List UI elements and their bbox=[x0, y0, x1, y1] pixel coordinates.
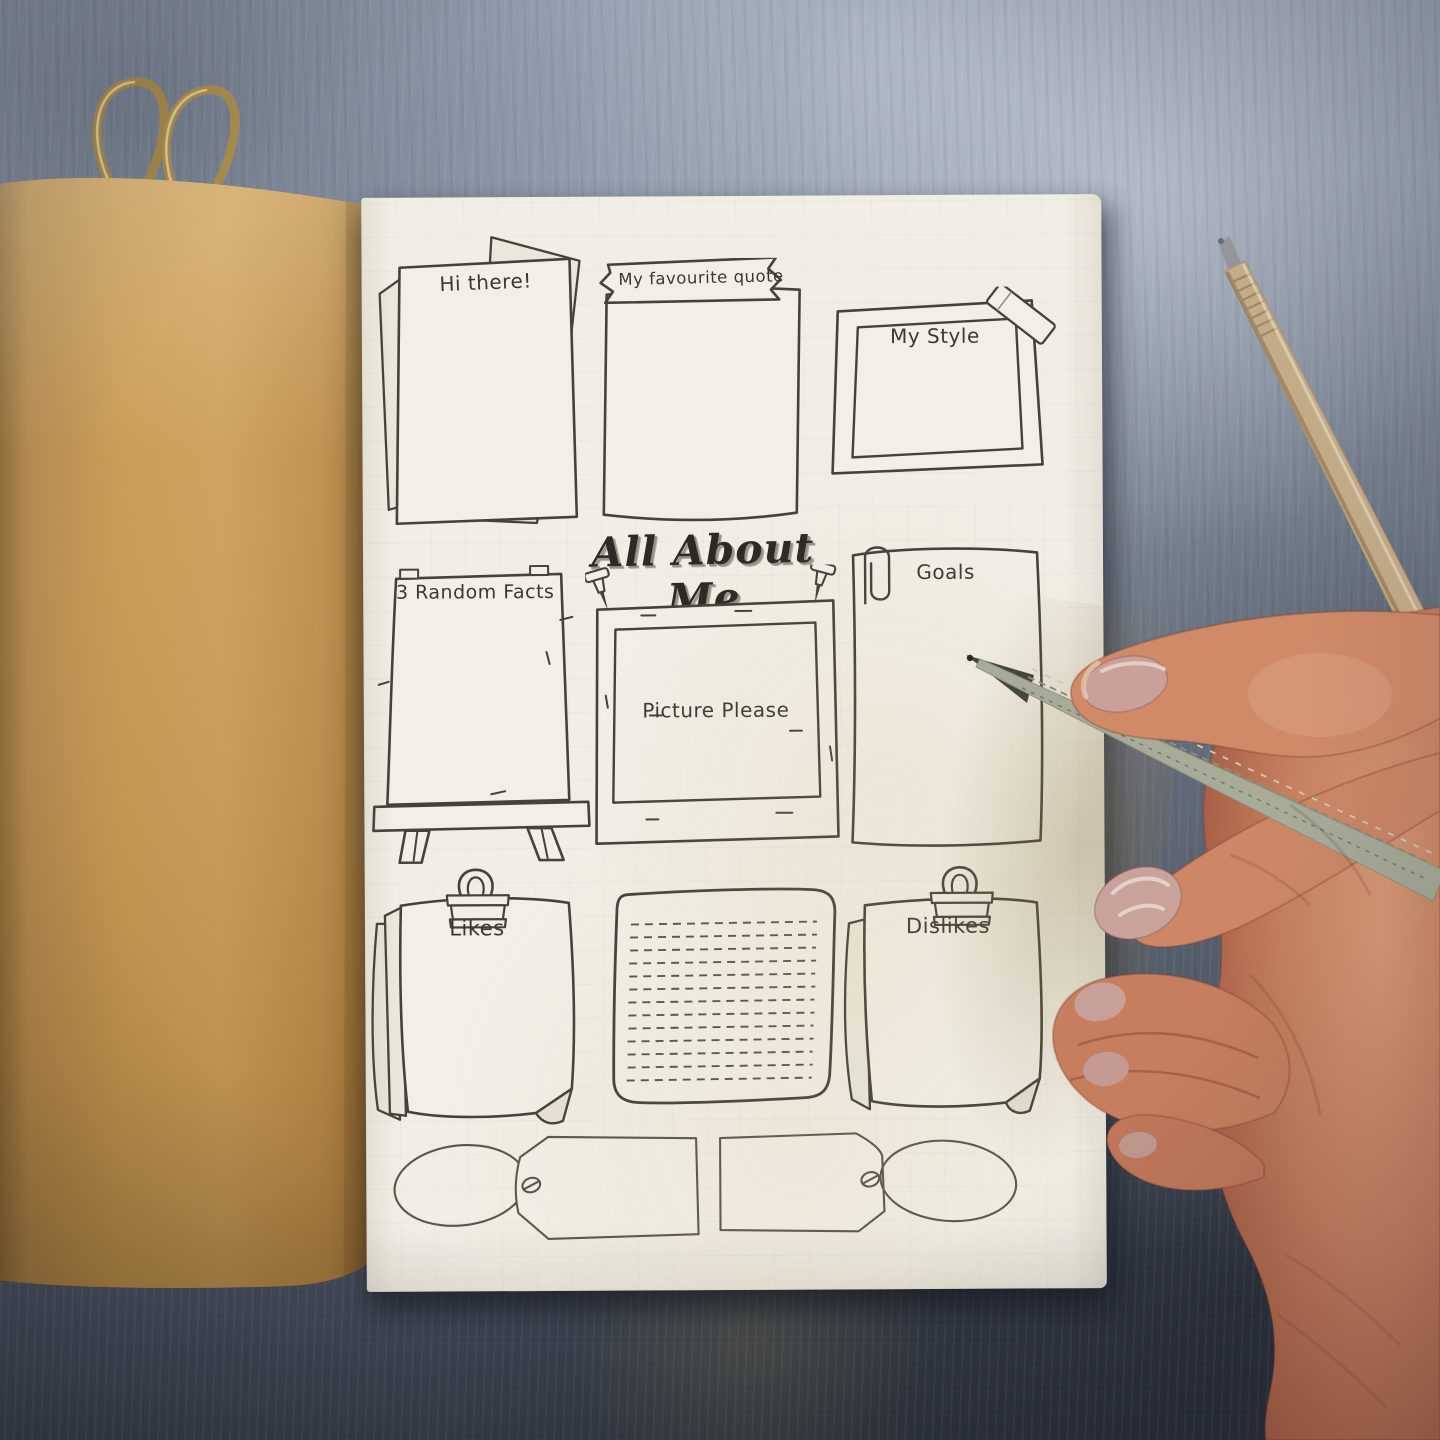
random-facts-box: 3 Random Facts bbox=[370, 564, 594, 865]
picture-please-label: Picture Please bbox=[626, 699, 806, 722]
hi-there-box: Hi there! bbox=[373, 229, 605, 540]
favourite-quote-box: My favourite quote bbox=[588, 258, 811, 541]
picture-please-box: Picture Please bbox=[585, 564, 849, 855]
lined-note-box bbox=[595, 877, 848, 1115]
photo-scene: Hi there! My favourite quote My bbox=[0, 0, 1440, 1440]
style-frame-icon bbox=[824, 286, 1057, 482]
easel-icon bbox=[370, 564, 594, 865]
hand-holding-pencil bbox=[930, 555, 1440, 1440]
likes-note-icon bbox=[365, 867, 590, 1134]
dashed-note-icon bbox=[595, 877, 848, 1115]
random-facts-label: 3 Random Facts bbox=[390, 582, 560, 604]
kraft-journal-cover bbox=[0, 166, 378, 1300]
my-style-box: My Style bbox=[824, 286, 1057, 482]
likes-box: Likes bbox=[365, 867, 590, 1134]
likes-label: Likes bbox=[425, 917, 529, 941]
my-style-label: My Style bbox=[860, 325, 1010, 348]
push-pin-icon bbox=[585, 567, 619, 614]
quote-frame-icon bbox=[588, 258, 811, 541]
